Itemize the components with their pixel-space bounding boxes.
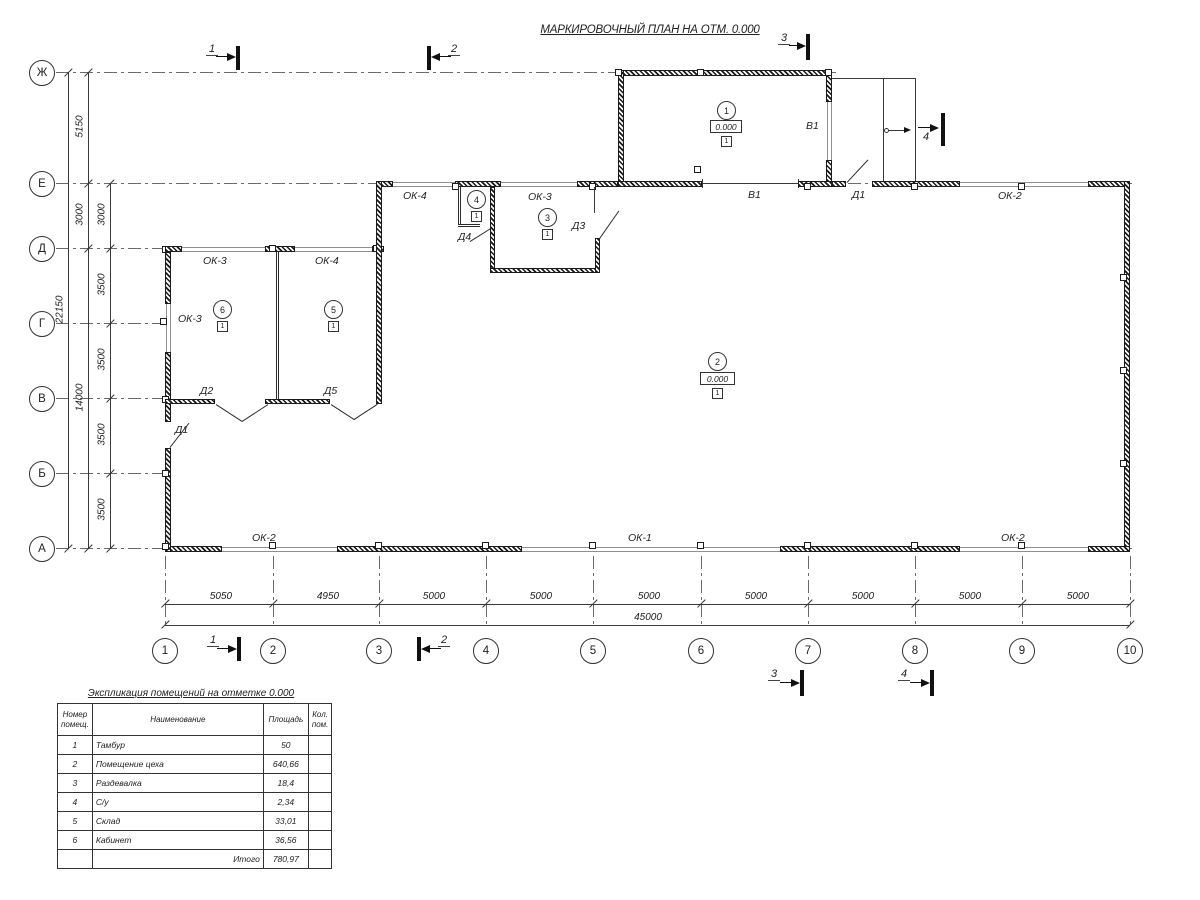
table-total-row: Итого 780,97 bbox=[58, 850, 332, 869]
wall-segment bbox=[577, 181, 618, 187]
elevation-mark: 0.000 bbox=[710, 120, 742, 133]
wall-segment bbox=[265, 399, 330, 404]
drawing-sheet: МАРКИРОВОЧНЫЙ ПЛАН НА ОТМ. 0.000 Ж Е Д Г… bbox=[0, 0, 1200, 900]
gate-label-v1: В1 bbox=[748, 189, 761, 201]
door-label-d1: Д1 bbox=[852, 189, 865, 201]
grid-line-col-1 bbox=[165, 556, 166, 626]
window-label-ok2: ОК-2 bbox=[998, 190, 1022, 202]
grid-line-col-5 bbox=[593, 556, 594, 626]
window-label-ok3: ОК-3 bbox=[528, 191, 552, 203]
door-jamb bbox=[594, 187, 595, 213]
axis-bubble-row: В bbox=[29, 386, 55, 412]
section-mark-line bbox=[438, 56, 451, 57]
cell-number: 5 bbox=[58, 812, 93, 831]
door-leaf-d2 bbox=[216, 404, 243, 422]
wall-segment bbox=[165, 246, 171, 304]
wall-segment bbox=[1088, 546, 1130, 552]
section-mark-bar bbox=[806, 34, 810, 60]
col-header-number: Номер помещ. bbox=[58, 704, 93, 736]
section-arrow-icon bbox=[921, 679, 930, 687]
dim-label-3500: 3500 bbox=[97, 488, 108, 532]
window-ok3 bbox=[182, 247, 265, 252]
dim-label-14000: 14000 bbox=[75, 376, 86, 420]
wall-segment bbox=[165, 352, 171, 422]
cell-number: 6 bbox=[58, 831, 93, 850]
section-mark-4-label: 4 bbox=[920, 131, 932, 143]
wall-segment bbox=[165, 546, 222, 552]
column-marker bbox=[697, 69, 704, 76]
ramp-arrow-icon bbox=[904, 127, 911, 133]
wall-segment bbox=[618, 70, 832, 76]
floor-type-mark: 1 bbox=[712, 388, 723, 399]
cell-name: Раздевалка bbox=[92, 774, 263, 793]
column-marker bbox=[697, 542, 704, 549]
axis-bubble-col: 4 bbox=[473, 638, 499, 664]
wall-segment bbox=[618, 70, 624, 187]
column-marker bbox=[825, 69, 832, 76]
section-arrow-icon bbox=[228, 645, 237, 653]
wall-segment bbox=[595, 238, 600, 273]
axis-bubble-col: 2 bbox=[260, 638, 286, 664]
floor-type-mark: 1 bbox=[721, 136, 732, 147]
room-schedule-table: Номер помещ. Наименование Площадь Кол. п… bbox=[57, 703, 332, 869]
dim-line-bottom-total bbox=[165, 625, 1130, 626]
section-mark-bar bbox=[941, 113, 945, 146]
door-label-d2: Д2 bbox=[200, 385, 213, 397]
floor-type-mark: 1 bbox=[471, 211, 482, 222]
cell-area: 33,01 bbox=[263, 812, 308, 831]
room-number-bubble: 1 bbox=[717, 101, 736, 120]
column-marker bbox=[615, 69, 622, 76]
cell-number: 4 bbox=[58, 793, 93, 812]
cell-area: 18,4 bbox=[263, 774, 308, 793]
cell-name: Кабинет bbox=[92, 831, 263, 850]
axis-bubble-col: 7 bbox=[795, 638, 821, 664]
axis-bubble-col: 1 bbox=[152, 638, 178, 664]
column-marker bbox=[1120, 367, 1127, 374]
total-value: 780,97 bbox=[263, 850, 308, 869]
wall-segment bbox=[490, 187, 495, 273]
window-ok1 bbox=[522, 547, 780, 552]
table-row: 4 С/у 2,34 bbox=[58, 793, 332, 812]
dim-label-bay: 5000 bbox=[1056, 591, 1100, 602]
table-row: 3 Раздевалка 18,4 bbox=[58, 774, 332, 793]
section-mark-4-label: 4 bbox=[898, 668, 910, 681]
cell-empty bbox=[58, 850, 93, 869]
window-label-ok4: ОК-4 bbox=[403, 190, 427, 202]
floor-type-mark: 1 bbox=[217, 321, 228, 332]
column-marker bbox=[162, 543, 169, 550]
room-number-bubble: 3 bbox=[538, 208, 557, 227]
column-marker bbox=[482, 542, 489, 549]
door-label-d4: Д4 bbox=[458, 231, 471, 243]
section-mark-2-label: 2 bbox=[448, 43, 460, 56]
total-label: Итого bbox=[92, 850, 263, 869]
table-row: 1 Тамбур 50 bbox=[58, 736, 332, 755]
axis-bubble-col: 3 bbox=[366, 638, 392, 664]
dim-label-3500: 3500 bbox=[97, 413, 108, 457]
section-mark-bar bbox=[417, 637, 421, 661]
grid-line-col-8 bbox=[915, 556, 916, 626]
dim-label-total: 45000 bbox=[626, 612, 670, 623]
dim-label-3000: 3000 bbox=[97, 193, 108, 237]
window-label-ok1: ОК-1 bbox=[628, 532, 652, 544]
cell-number: 2 bbox=[58, 755, 93, 774]
section-arrow-icon bbox=[797, 42, 806, 50]
axis-bubble-col: 10 bbox=[1117, 638, 1143, 664]
grid-line-col-4 bbox=[486, 556, 487, 626]
grid-line-row-b bbox=[56, 473, 170, 474]
grid-line-row-v bbox=[56, 398, 170, 399]
door-label-d1: Д1 bbox=[175, 424, 188, 436]
section-mark-3-label: 3 bbox=[778, 32, 790, 45]
axis-bubble-col: 8 bbox=[902, 638, 928, 664]
table-row: 6 Кабинет 36,56 bbox=[58, 831, 332, 850]
dim-label-bay: 5050 bbox=[199, 591, 243, 602]
partition-wall bbox=[458, 187, 461, 227]
grid-line-col-3 bbox=[379, 556, 380, 626]
window-ok4 bbox=[393, 182, 455, 187]
axis-bubble-row: А bbox=[29, 536, 55, 562]
grid-line-col-6 bbox=[701, 556, 702, 626]
cell-count bbox=[308, 831, 332, 850]
cell-count bbox=[308, 793, 332, 812]
cell-count bbox=[308, 755, 332, 774]
col-header-name: Наименование bbox=[92, 704, 263, 736]
floor-type-mark: 1 bbox=[542, 229, 553, 240]
col-header-area: Площадь bbox=[263, 704, 308, 736]
wall-segment bbox=[165, 448, 171, 552]
column-marker bbox=[804, 183, 811, 190]
grid-line-col-10 bbox=[1130, 556, 1131, 626]
axis-bubble-row: Б bbox=[29, 461, 55, 487]
col-header-count: Кол. пом. bbox=[308, 704, 332, 736]
door-leaf-d3 bbox=[598, 211, 619, 240]
cell-name: Помещение цеха bbox=[92, 755, 263, 774]
dim-label-22150: 22150 bbox=[55, 288, 66, 332]
window-ok3 bbox=[501, 182, 577, 187]
wall-segment bbox=[618, 181, 702, 187]
room-number-bubble: 5 bbox=[324, 300, 343, 319]
dim-label-3500: 3500 bbox=[97, 338, 108, 382]
column-marker bbox=[804, 542, 811, 549]
section-mark-2-label: 2 bbox=[438, 634, 450, 647]
wall-segment bbox=[165, 399, 215, 404]
window-label-ok2: ОК-2 bbox=[252, 532, 276, 544]
elevation-mark: 0.000 bbox=[700, 372, 735, 385]
dim-line-left-total bbox=[68, 73, 69, 549]
section-mark-line bbox=[428, 648, 441, 649]
door-leaf-d1 bbox=[847, 160, 869, 184]
cell-count bbox=[308, 812, 332, 831]
axis-bubble-col: 9 bbox=[1009, 638, 1035, 664]
table-header-row: Номер помещ. Наименование Площадь Кол. п… bbox=[58, 704, 332, 736]
column-marker bbox=[375, 542, 382, 549]
wall-segment bbox=[376, 181, 382, 404]
grid-line-col-2 bbox=[273, 556, 274, 626]
cell-area: 36,56 bbox=[263, 831, 308, 850]
dim-label-bay: 5000 bbox=[519, 591, 563, 602]
gate-v1-opening bbox=[702, 183, 799, 184]
window-label-ok4: ОК-4 bbox=[315, 255, 339, 267]
dim-line-left-outer bbox=[88, 73, 89, 549]
cell-name: С/у bbox=[92, 793, 263, 812]
wall-segment bbox=[490, 268, 600, 273]
window-ok2 bbox=[222, 547, 337, 552]
section-mark-3-label: 3 bbox=[768, 668, 780, 681]
gate-jamb bbox=[702, 179, 703, 188]
dim-label-3000: 3000 bbox=[75, 193, 86, 237]
axis-bubble-row: Д bbox=[29, 236, 55, 262]
axis-bubble-row: Ж bbox=[29, 60, 55, 86]
grid-line-col-9 bbox=[1022, 556, 1023, 626]
door-leaf-d4 bbox=[470, 227, 493, 242]
wall-segment bbox=[165, 246, 182, 252]
cell-area: 640,66 bbox=[263, 755, 308, 774]
door-label-d5: Д5 bbox=[324, 385, 337, 397]
column-marker bbox=[589, 542, 596, 549]
dim-label-5150: 5150 bbox=[75, 105, 86, 149]
cell-count bbox=[308, 736, 332, 755]
section-arrow-icon bbox=[227, 53, 236, 61]
partition-wall bbox=[276, 252, 279, 402]
room-number-bubble: 2 bbox=[708, 352, 727, 371]
window-ok4 bbox=[295, 247, 372, 252]
ramp-edge bbox=[915, 78, 916, 182]
dim-line-left-inner bbox=[110, 184, 111, 549]
column-marker bbox=[1018, 183, 1025, 190]
dim-label-bay: 5000 bbox=[948, 591, 992, 602]
section-mark-1-label: 1 bbox=[207, 634, 219, 647]
window-label-ok3: ОК-3 bbox=[203, 255, 227, 267]
table-row: 5 Склад 33,01 bbox=[58, 812, 332, 831]
grid-line-col-7 bbox=[808, 556, 809, 626]
gate-label-v1: В1 bbox=[806, 120, 819, 132]
axis-bubble-row: Е bbox=[29, 171, 55, 197]
column-marker bbox=[694, 166, 701, 173]
column-marker bbox=[911, 183, 918, 190]
section-arrow-icon bbox=[791, 679, 800, 687]
door-leaf-d5 bbox=[354, 404, 378, 420]
dim-label-bay: 5000 bbox=[841, 591, 885, 602]
axis-bubble-row: Г bbox=[29, 311, 55, 337]
room-number-bubble: 4 bbox=[467, 190, 486, 209]
room-number-bubble: 6 bbox=[213, 300, 232, 319]
column-marker bbox=[162, 470, 169, 477]
dim-label-bay: 5000 bbox=[734, 591, 778, 602]
section-mark-1-label: 1 bbox=[206, 43, 218, 56]
door-leaf-d5 bbox=[331, 404, 355, 420]
partition-wall bbox=[458, 224, 480, 227]
cell-area: 2,34 bbox=[263, 793, 308, 812]
section-mark-bar bbox=[427, 46, 431, 70]
gate-v1 bbox=[827, 102, 832, 160]
door-label-d3: Д3 bbox=[572, 220, 585, 232]
dim-label-bay: 5000 bbox=[412, 591, 456, 602]
cell-empty bbox=[308, 850, 332, 869]
cell-name: Тамбур bbox=[92, 736, 263, 755]
section-mark-bar bbox=[800, 670, 804, 696]
section-mark-bar bbox=[236, 46, 240, 70]
wall-segment bbox=[832, 181, 846, 187]
table-row: 2 Помещение цеха 640,66 bbox=[58, 755, 332, 774]
cell-area: 50 bbox=[263, 736, 308, 755]
window-label-ok3: ОК-3 bbox=[178, 313, 202, 325]
window-ok3 bbox=[166, 304, 171, 352]
dim-line-bottom-bays bbox=[165, 604, 1130, 605]
dim-label-bay: 5000 bbox=[627, 591, 671, 602]
column-marker bbox=[1120, 274, 1127, 281]
column-marker bbox=[269, 245, 276, 252]
axis-bubble-col: 6 bbox=[688, 638, 714, 664]
door-leaf-d2 bbox=[242, 404, 269, 422]
dim-label-bay: 4950 bbox=[306, 591, 350, 602]
cell-name: Склад bbox=[92, 812, 263, 831]
ramp-edge bbox=[832, 78, 916, 79]
wall-segment bbox=[337, 546, 522, 552]
column-marker bbox=[911, 542, 918, 549]
axis-bubble-col: 5 bbox=[580, 638, 606, 664]
section-mark-bar bbox=[237, 637, 241, 661]
cell-count bbox=[308, 774, 332, 793]
section-mark-bar bbox=[930, 670, 934, 696]
window-marker bbox=[160, 318, 167, 325]
dim-label-3500: 3500 bbox=[97, 263, 108, 307]
column-marker bbox=[1120, 460, 1127, 467]
window-label-ok2: ОК-2 bbox=[1001, 532, 1025, 544]
cell-number: 3 bbox=[58, 774, 93, 793]
cell-number: 1 bbox=[58, 736, 93, 755]
floor-type-mark: 1 bbox=[328, 321, 339, 332]
table-title: Экспликация помещений на отметке 0.000 bbox=[57, 688, 325, 699]
grid-line-row-g bbox=[56, 323, 170, 324]
